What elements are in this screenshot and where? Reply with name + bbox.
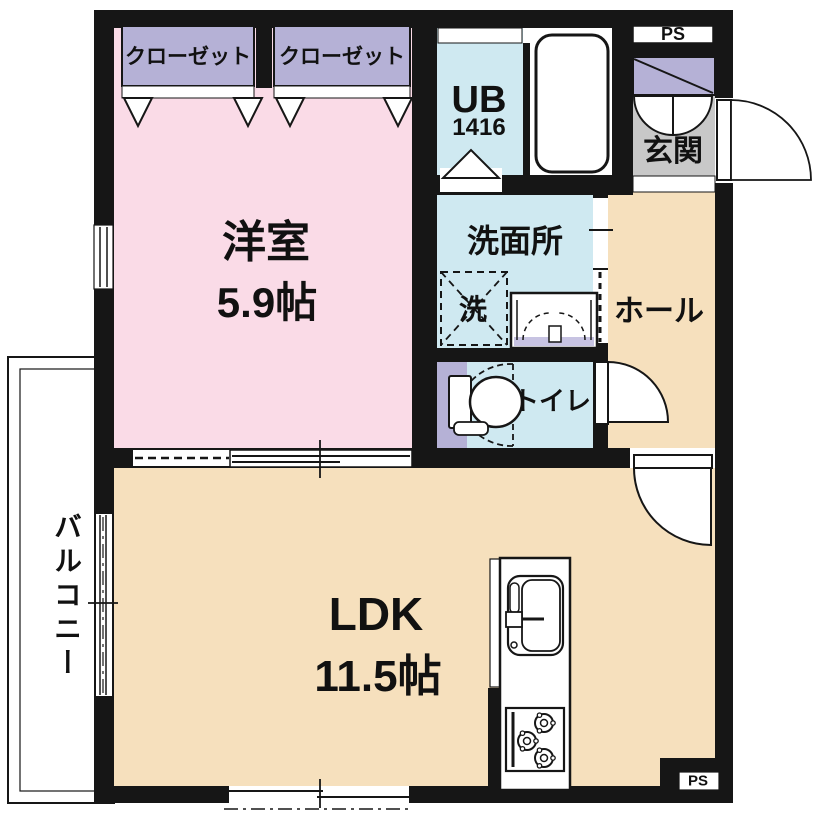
ps-bottom-label: PS [688,774,708,789]
entrance-door-swing [731,100,811,180]
western-room-label: 洋室 [222,221,310,265]
closet-1-label: クローゼット [125,47,251,68]
washer-label: 洗 [459,296,487,324]
toilet-label: トイレ [513,388,591,414]
vanity-icon [511,293,597,348]
entrance-label: 玄関 [643,137,703,167]
balcony-label: バルコニー [52,512,80,682]
ps-top-label: PS [661,25,685,43]
unit-bath-size-label: 1416 [452,116,505,140]
western-room-size-label: 5.9帖 [217,282,317,324]
stove-icon [506,708,564,771]
bathtub-icon [536,35,608,172]
toilet-door-leaf [595,362,608,424]
entrance-step [633,176,715,192]
floorplan: クローゼット クローゼット 洋室 5.9帖 UB 1416 PS 玄関 洗面所 … [0,0,825,816]
window-ub [438,28,522,43]
hall-door-leaf [634,455,712,468]
washroom-label: 洗面所 [467,225,563,257]
sink-icon [506,576,563,655]
closet-2-label: クローゼット [279,47,405,68]
window-west [94,225,113,289]
hall-floor [608,192,715,468]
ldk-size-label: 11.5帖 [314,655,441,699]
kitchen [490,558,570,790]
entrance-door-leaf [717,100,731,180]
toilet-tank [449,376,471,428]
ldk-label: LDK [329,591,424,637]
hall-label: ホール [614,297,704,327]
